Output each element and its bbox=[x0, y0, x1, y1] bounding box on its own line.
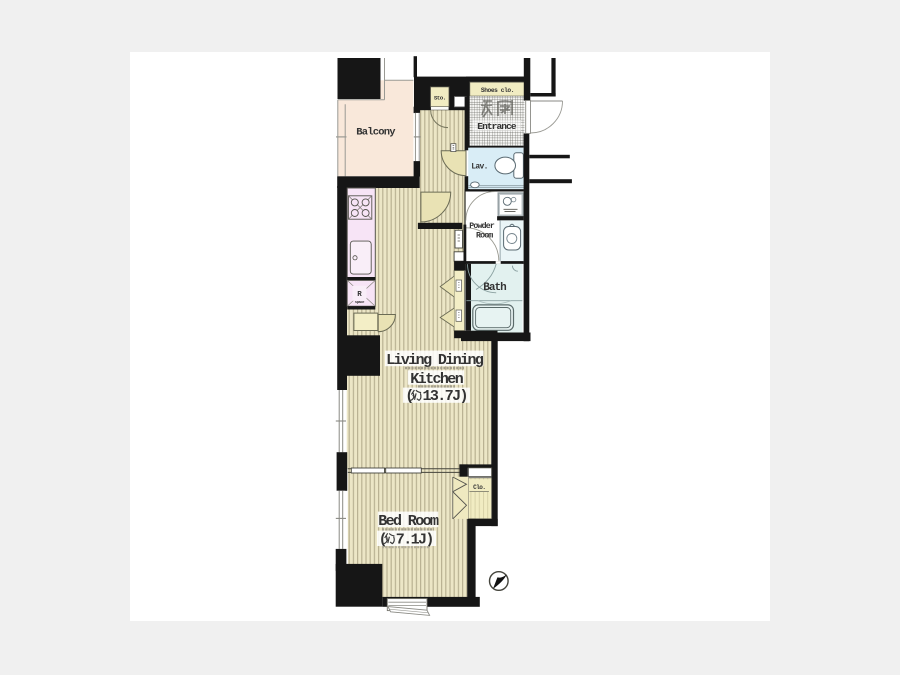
svg-text:Bed Room: Bed Room bbox=[378, 513, 439, 530]
svg-text:(: ( bbox=[405, 388, 412, 405]
svg-text:Lav.: Lav. bbox=[471, 163, 487, 172]
svg-text:Living Dining: Living Dining bbox=[386, 352, 484, 369]
svg-text:7.1J): 7.1J) bbox=[396, 531, 433, 548]
svg-text:Room: Room bbox=[476, 231, 493, 240]
svg-text:Powder: Powder bbox=[469, 221, 495, 231]
svg-text:(: ( bbox=[379, 531, 386, 548]
svg-text:Balcony: Balcony bbox=[356, 127, 396, 139]
svg-text:Entrance: Entrance bbox=[477, 121, 517, 132]
svg-text:space: space bbox=[355, 301, 364, 305]
svg-text:Sto.: Sto. bbox=[434, 95, 446, 102]
svg-text:Bath: Bath bbox=[483, 282, 506, 294]
svg-text:Clo.: Clo. bbox=[473, 484, 485, 491]
svg-text:Shoes clo.: Shoes clo. bbox=[481, 87, 514, 94]
svg-text:R: R bbox=[357, 291, 362, 299]
svg-text:13.7J): 13.7J) bbox=[423, 388, 467, 405]
